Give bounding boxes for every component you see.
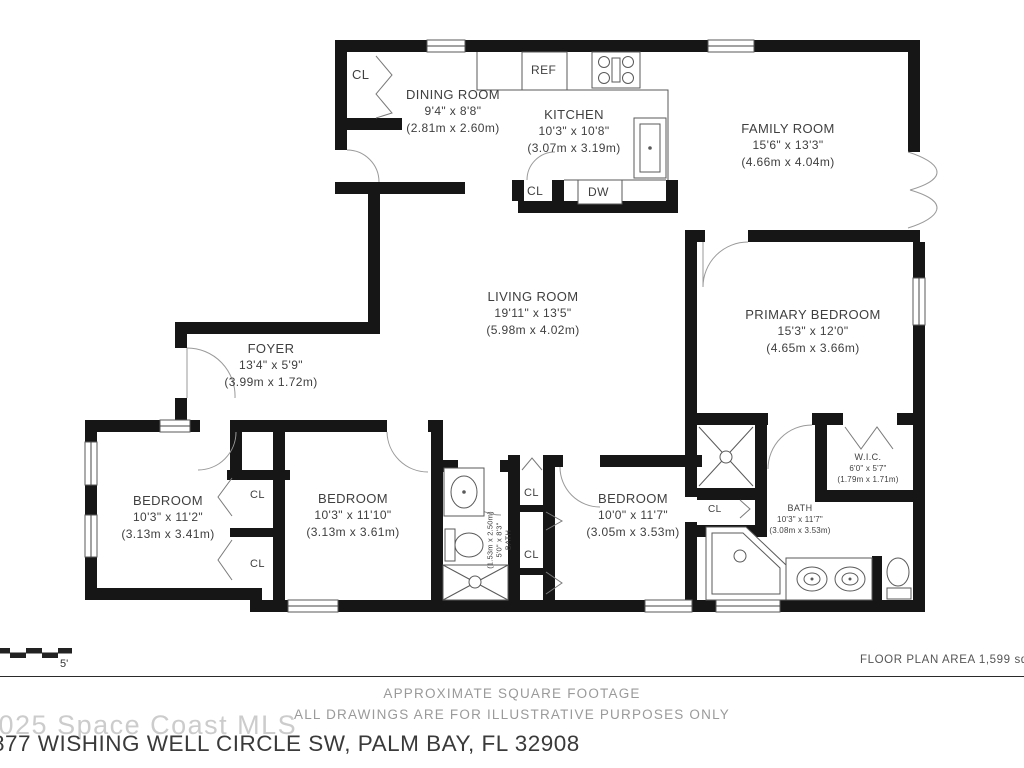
floor-plan-page: DINING ROOM 9'4" x 8'8" (2.81m x 2.60m) …: [0, 0, 1024, 768]
french-door-arc-top: [908, 152, 937, 190]
bed3-closet-chevron: [740, 500, 750, 518]
room-label-dining: DINING ROOM 9'4" x 8'8" (2.81m x 2.60m): [406, 86, 500, 137]
hall-bath-toilet: [445, 529, 483, 561]
room-name: LIVING ROOM: [486, 288, 579, 305]
closet-label: CL: [524, 549, 539, 561]
room-name: PRIMARY BEDROOM: [745, 306, 881, 323]
closet-label: CL: [708, 504, 722, 515]
room-metric: (4.66m x 4.04m): [741, 154, 835, 171]
room-label-living: LIVING ROOM 19'11" x 13'5" (5.98m x 4.02…: [486, 288, 579, 339]
hall-bath-sink: [444, 468, 484, 516]
room-metric: (5.98m x 4.02m): [486, 322, 579, 339]
dining-door-arc: [347, 150, 379, 182]
bedroom2-door-arc: [387, 432, 428, 472]
room-metric: (3.13m x 3.41m): [121, 526, 214, 543]
room-name: KITCHEN: [527, 106, 620, 123]
wall-oven-cabinet: [634, 118, 666, 178]
room-metric: (4.65m x 3.66m): [745, 340, 881, 357]
floor-plan-drawing: [0, 0, 1024, 768]
room-metric: (3.13m x 3.61m): [306, 524, 399, 541]
room-imperial: 10'3" x 11'10": [306, 507, 399, 524]
room-imperial: 10'3" x 11'7": [769, 514, 830, 525]
dining-closet-bifold: [376, 56, 392, 118]
room-name: BATH: [769, 503, 830, 514]
bed1-closet-top-bifold: [218, 478, 232, 516]
property-address: 877 WISHING WELL CIRCLE SW, PALM BAY, FL…: [0, 731, 580, 757]
room-metric: (1.53m x 2.50m): [486, 511, 495, 569]
room-name: BEDROOM: [586, 490, 679, 507]
room-imperial: 19'11" x 13'5": [486, 305, 579, 322]
room-label-bedroom1: BEDROOM 10'3" x 11'2" (3.13m x 3.41m): [121, 492, 214, 543]
room-imperial: 6'0" x 5'7": [837, 463, 898, 474]
closet-label: CL: [250, 489, 265, 501]
window: [716, 600, 780, 612]
room-label-kitchen: KITCHEN 10'3" x 10'8" (3.07m x 3.19m): [527, 106, 620, 157]
closet-label: CL: [250, 558, 265, 570]
footer-divider: [0, 676, 1024, 677]
room-imperial: 9'4" x 8'8": [406, 103, 500, 120]
room-label-hall-bath: (1.53m x 2.50m) 5'0" x 8'3" BATH: [486, 511, 513, 569]
floor-plan-area-text: FLOOR PLAN AREA 1,599 sq.ft.: [860, 654, 1024, 666]
room-imperial: 5'0" x 8'3": [495, 511, 504, 569]
hall-closet-top-bifold: [522, 458, 542, 470]
room-label-bedroom3: BEDROOM 10'0" x 11'7" (3.05m x 3.53m): [586, 490, 679, 541]
room-metric: (3.99m x 1.72m): [224, 374, 317, 391]
room-label-primary: PRIMARY BEDROOM 15'3" x 12'0" (4.65m x 3…: [745, 306, 881, 357]
room-metric: (3.08m x 3.53m): [769, 525, 830, 536]
room-label-wic: W.I.C. 6'0" x 5'7" (1.79m x 1.71m): [837, 452, 898, 485]
wic-bifold: [845, 427, 893, 449]
primary-bath-door-arc: [768, 425, 812, 469]
room-imperial: 10'3" x 10'8": [527, 123, 620, 140]
room-name: W.I.C.: [837, 452, 898, 463]
room-name: BATH: [504, 511, 513, 569]
room-label-foyer: FOYER 13'4" x 5'9" (3.99m x 1.72m): [224, 340, 317, 391]
scale-bar: [0, 648, 72, 658]
room-label-bedroom2: BEDROOM 10'3" x 11'10" (3.13m x 3.61m): [306, 490, 399, 541]
refrigerator-label: REF: [531, 63, 556, 77]
primary-door-arc: [703, 242, 748, 287]
disclaimer-line1: APPROXIMATE SQUARE FOOTAGE: [383, 686, 640, 701]
window: [708, 40, 754, 52]
disclaimer-line2: ALL DRAWINGS ARE FOR ILLUSTRATIVE PURPOS…: [294, 707, 730, 722]
closet-label: CL: [352, 67, 369, 82]
room-name: FAMILY ROOM: [741, 120, 835, 137]
primary-toilet: [887, 558, 911, 599]
room-label-family: FAMILY ROOM 15'6" x 13'3" (4.66m x 4.04m…: [741, 120, 835, 171]
window: [160, 420, 190, 432]
bed1-closet-bottom-bifold: [218, 540, 232, 580]
room-imperial: 15'3" x 12'0": [745, 323, 881, 340]
room-imperial: 10'0" x 11'7": [586, 507, 679, 524]
room-imperial: 10'3" x 11'2": [121, 509, 214, 526]
window: [913, 278, 925, 325]
hall-bath-shower: [443, 565, 508, 600]
dishwasher-label: DW: [588, 185, 609, 199]
window: [288, 600, 338, 612]
scale-label: 5': [60, 658, 68, 670]
room-name: BEDROOM: [121, 492, 214, 509]
room-metric: (1.79m x 1.71m): [837, 474, 898, 485]
room-imperial: 13'4" x 5'9": [224, 357, 317, 374]
corner-tub: [706, 527, 786, 600]
room-metric: (3.07m x 3.19m): [527, 140, 620, 157]
stove: [592, 52, 640, 88]
room-name: BEDROOM: [306, 490, 399, 507]
room-imperial: 15'6" x 13'3": [741, 137, 835, 154]
window: [85, 515, 97, 557]
room-label-primary-bath: BATH 10'3" x 11'7" (3.08m x 3.53m): [769, 503, 830, 536]
window: [85, 442, 97, 485]
primary-shower: [699, 427, 753, 486]
room-metric: (3.05m x 3.53m): [586, 524, 679, 541]
room-name: DINING ROOM: [406, 86, 500, 103]
double-vanity: [786, 558, 872, 600]
room-name: FOYER: [224, 340, 317, 357]
window: [645, 600, 692, 612]
french-door-arc-bottom: [908, 190, 937, 228]
closet-label: CL: [524, 487, 539, 499]
closet-label: CL: [527, 184, 543, 198]
room-metric: (2.81m x 2.60m): [406, 120, 500, 137]
window: [427, 40, 465, 52]
